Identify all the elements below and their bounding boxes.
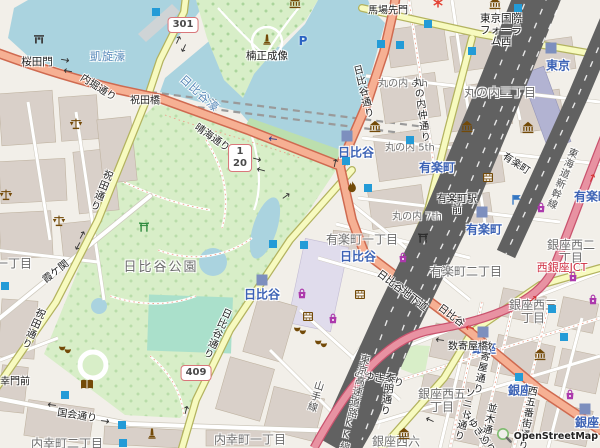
route-shield: 409 <box>181 365 212 381</box>
station-marker <box>580 404 591 415</box>
subway-entrance-marker <box>406 136 414 144</box>
map-viewport[interactable]: 凱旋濠日比谷濠丸の内三丁目有楽町一丁目有楽町二丁目内幸町一丁目内幸町二丁目銀座西… <box>0 0 600 448</box>
subway-entrance-marker <box>515 373 523 381</box>
subway-entrance-marker <box>364 184 372 192</box>
subway-entrance-marker <box>560 333 568 341</box>
subway-entrance-marker <box>1 282 9 290</box>
subway-entrance-marker <box>468 47 476 55</box>
attribution: OpenStreetMap <box>496 427 598 446</box>
attribution-text: OpenStreetMap <box>514 431 598 442</box>
map-canvas <box>0 0 600 448</box>
station-marker <box>477 207 488 218</box>
subway-entrance-marker <box>118 421 126 429</box>
subway-entrance-marker <box>152 8 160 16</box>
station-marker <box>478 327 489 338</box>
subway-entrance-marker <box>548 305 556 313</box>
subway-entrance-marker <box>342 157 350 165</box>
station-marker <box>257 275 268 286</box>
subway-entrance-marker <box>377 40 385 48</box>
station-marker <box>342 131 353 142</box>
subway-entrance-marker <box>119 439 127 447</box>
subway-entrance-marker <box>269 240 277 248</box>
subway-entrance-marker <box>424 20 432 28</box>
station-marker <box>546 43 557 54</box>
subway-entrance-marker <box>300 241 308 249</box>
subway-entrance-marker <box>514 4 522 12</box>
osm-logo-icon <box>496 427 512 446</box>
subway-entrance-marker <box>396 41 404 49</box>
route-shield: 301 <box>168 17 199 33</box>
route-shield: 1 20 <box>228 144 252 172</box>
subway-entrance-marker <box>61 391 69 399</box>
